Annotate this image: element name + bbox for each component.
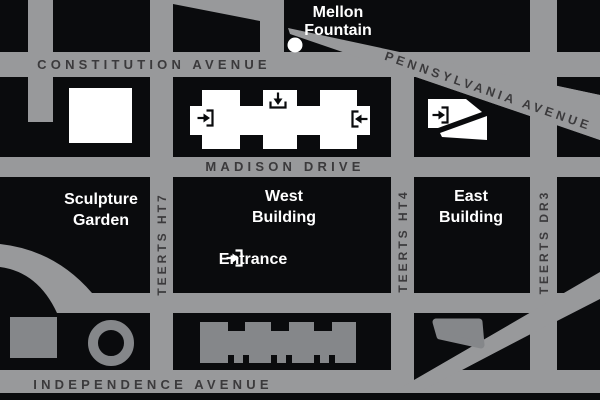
mellon-fountain-label-line1: Mellon — [313, 4, 364, 21]
mellon-fountain-dot — [288, 38, 303, 53]
nga-area-map: CONSTITUTION AVENUE PENNSYLVANIA AVENUE … — [0, 0, 600, 400]
tick — [314, 355, 320, 363]
bottom-edge-strip — [0, 393, 600, 400]
east-building-label-line1: East — [454, 188, 488, 205]
sculpture-garden-fountain-footprint — [69, 88, 132, 143]
southwest-square-footprint — [10, 317, 57, 358]
east-building-label-line2: Building — [439, 209, 503, 226]
block-northeast — [557, 0, 600, 52]
mellon-fountain-label-line2: Fountain — [304, 22, 372, 39]
block-northwest-1 — [0, 0, 28, 52]
tick — [228, 355, 234, 363]
west-building-wing — [263, 90, 297, 106]
tick — [271, 355, 277, 363]
west-building-main-bar — [190, 106, 370, 135]
notch — [271, 322, 289, 331]
tick — [286, 355, 292, 363]
west-building-label-line1: West — [265, 188, 304, 205]
seventh-street-label: TEERTS HT7 — [155, 192, 169, 295]
fourth-street-label: TEERTS HT4 — [396, 189, 410, 292]
madison-drive-label: MADISON DRIVE — [205, 159, 364, 174]
west-building-label-line2: Building — [252, 209, 316, 226]
notch — [314, 322, 332, 331]
west-building-wing — [202, 90, 240, 106]
constitution-avenue-label: CONSTITUTION AVENUE — [37, 57, 271, 72]
west-building-wing — [320, 135, 357, 149]
block-northwest-2 — [53, 0, 150, 52]
independence-avenue-label: INDEPENDENCE AVENUE — [33, 377, 272, 392]
west-building-wing — [202, 135, 240, 149]
block-east-of-3rd-lower — [557, 177, 600, 293]
west-building-wing — [320, 90, 357, 106]
entrance-label: Entrance — [219, 251, 288, 268]
map-canvas: CONSTITUTION AVENUE PENNSYLVANIA AVENUE … — [0, 0, 600, 400]
third-street-label: TEERTS DR3 — [537, 190, 551, 295]
sculpture-garden-label-line2: Garden — [73, 212, 129, 229]
sculpture-garden-label-line1: Sculpture — [64, 191, 138, 208]
tick — [243, 355, 249, 363]
notch — [228, 322, 245, 331]
tick — [329, 355, 335, 363]
west-building-wing — [263, 135, 297, 149]
